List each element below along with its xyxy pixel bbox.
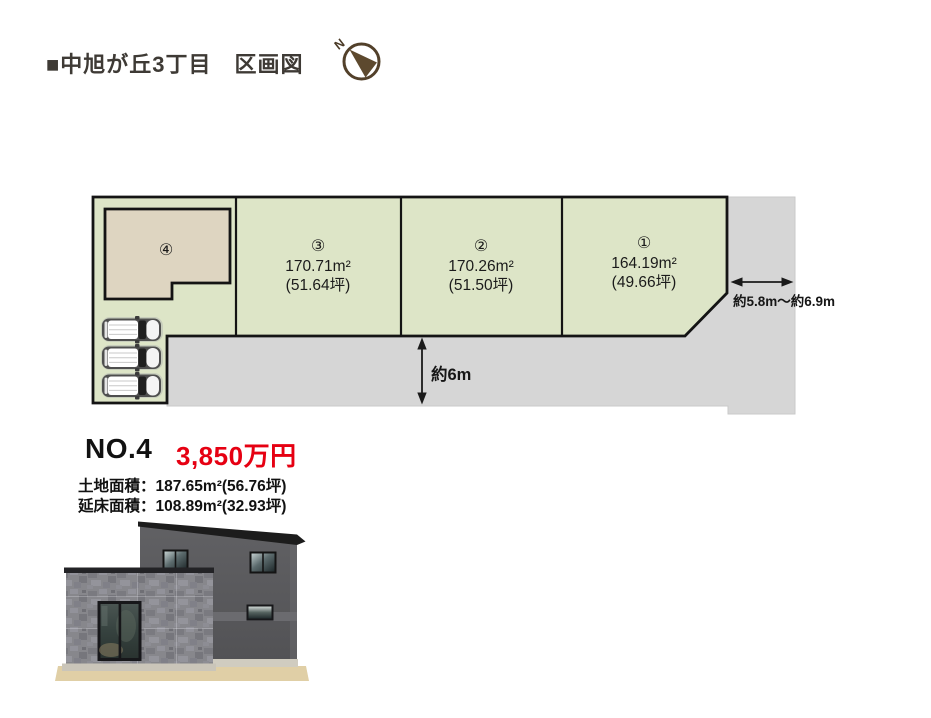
detail-lot-no: NO.4	[85, 433, 152, 465]
car-icon	[101, 344, 163, 372]
lot-2-tsubo: (51.50坪)	[448, 276, 513, 295]
car-icon	[101, 316, 163, 344]
page-title: ■中旭が丘3丁目 区画図	[46, 47, 304, 79]
side-road-width-label: 約5.8m～約6.9m	[733, 290, 835, 310]
house-front-roof	[64, 568, 214, 574]
lot-1-label: ① 164.19m² (49.66坪)	[611, 234, 676, 292]
lot-2-area: 170.26m²	[448, 257, 513, 276]
lot-3-tsubo: (51.64坪)	[285, 276, 350, 295]
lot-3-label: ③ 170.71m² (51.64坪)	[285, 237, 350, 295]
house-window	[247, 605, 274, 621]
house-rear-side	[290, 540, 297, 661]
lot-2-label: ② 170.26m² (51.50坪)	[448, 237, 513, 295]
lot-2-number: ②	[448, 237, 513, 257]
lot-3-area: 170.71m²	[285, 257, 350, 276]
detail-floor-area: 延床面積：108.89m²(32.93坪)	[78, 494, 286, 516]
lot-3-number: ③	[285, 237, 350, 257]
compass-icon: N	[332, 36, 379, 79]
house-illustration	[55, 522, 309, 682]
road-width-label: 約6m	[431, 361, 471, 385]
house-front-base	[62, 664, 216, 672]
lot-4-number: ④	[159, 240, 173, 260]
detail-price: 3,850万円	[176, 436, 297, 473]
lot-1-tsubo: (49.66坪)	[611, 273, 676, 292]
site-plan-figure: N	[0, 0, 931, 718]
house-window-large	[98, 601, 142, 661]
car-icon	[101, 372, 163, 400]
lot-1-area: 164.19m²	[611, 254, 676, 273]
compass-north-label: N	[332, 36, 348, 53]
house-rear-base	[212, 659, 298, 667]
house-window	[250, 552, 277, 574]
detail-land-area: 土地面積：187.65m²(56.76坪)	[78, 474, 286, 496]
lot-1-number: ①	[611, 234, 676, 254]
flyer-page: N	[0, 0, 931, 718]
